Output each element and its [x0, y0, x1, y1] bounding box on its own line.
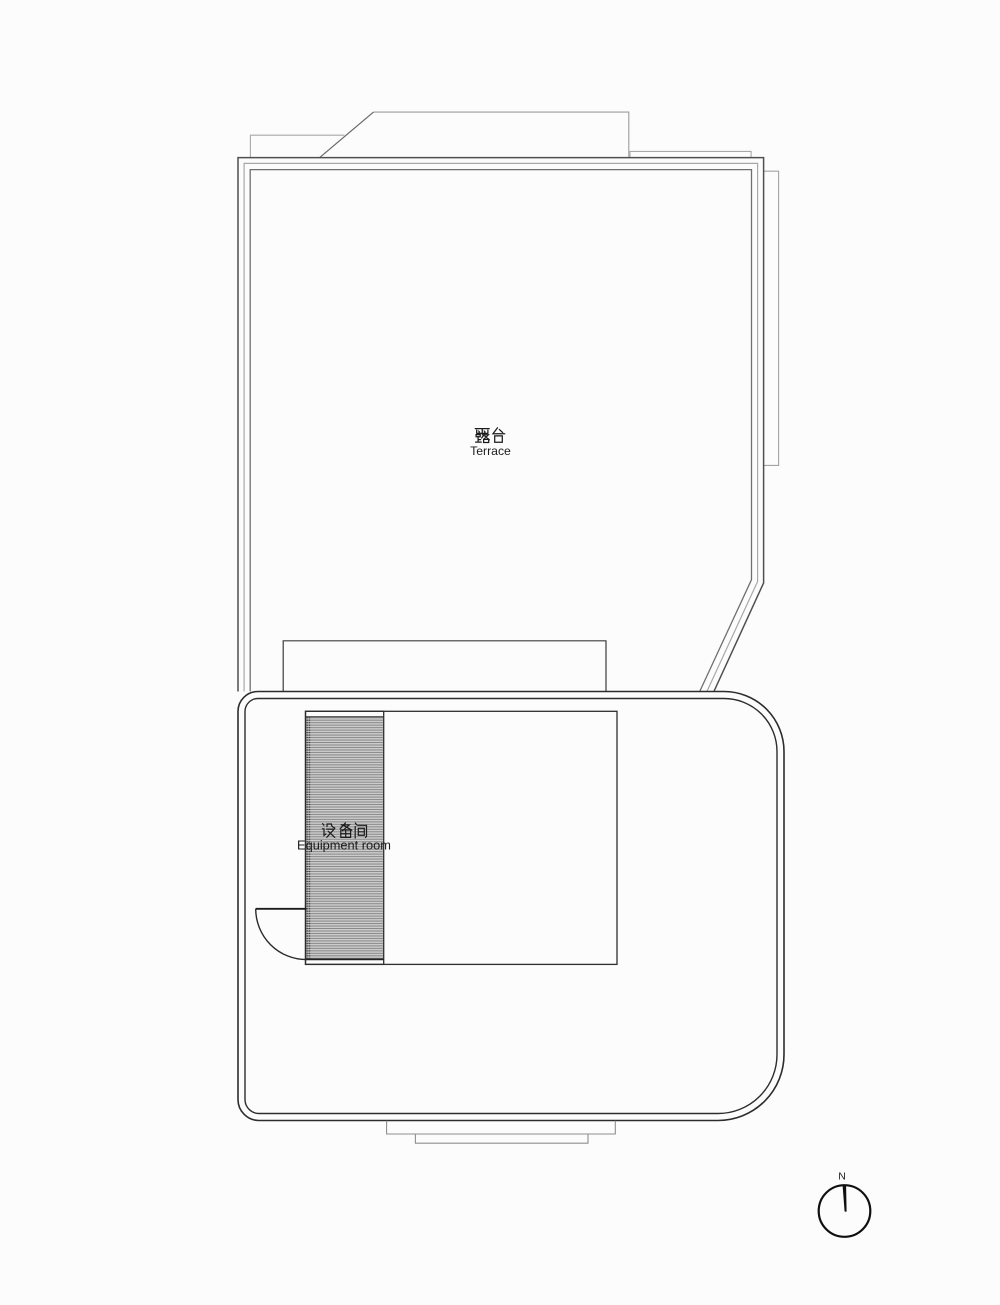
svg-text:Equipment room: Equipment room — [297, 837, 391, 852]
svg-text:Terrace: Terrace — [470, 444, 511, 458]
svg-text:N: N — [838, 1170, 846, 1182]
